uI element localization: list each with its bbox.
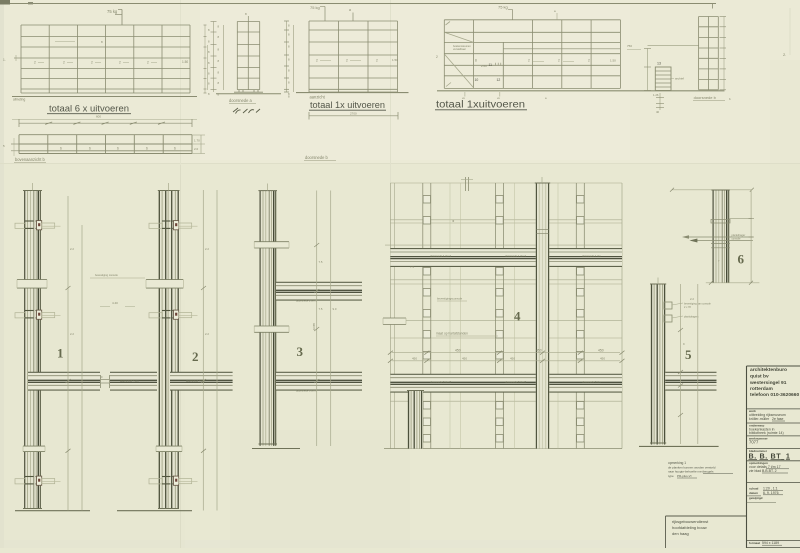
- svg-text:B. B. BT_1: B. B. BT_1: [749, 451, 791, 460]
- svg-text:doorsnede 1 t/m 3: doorsnede 1 t/m 3: [505, 254, 526, 258]
- svg-text:doorsnede 1 t/m: doorsnede 1 t/m: [582, 254, 601, 258]
- svg-text:13: 13: [657, 62, 661, 66]
- svg-text:6: 6: [117, 146, 119, 150]
- svg-text:vo: vo: [497, 96, 500, 100]
- svg-text:doorsnede 1 t/m 5: doorsnede 1 t/m 5: [296, 298, 317, 302]
- svg-text:2: 2: [119, 60, 121, 64]
- svg-text:1:20 , 1:1: 1:20 , 1:1: [763, 486, 778, 490]
- svg-text:doorsnede 6 t/m: doorsnede 6 t/m: [582, 380, 601, 384]
- svg-text:quist bv: quist bv: [750, 374, 769, 380]
- svg-text:maat op hartafstanden: maat op hartafstanden: [436, 332, 468, 336]
- svg-text:totaal 6 x uitvoeren: totaal 6 x uitvoeren: [49, 104, 129, 115]
- svg-text:naar hoogte-behoefte met: naar hoogte-behoefte met: [668, 470, 703, 474]
- svg-text:hoofdafdeling bouw: hoofdafdeling bouw: [672, 525, 707, 530]
- svg-text:2.2: 2.2: [70, 247, 74, 251]
- svg-text:doorsnede 6 t/m 8: doorsnede 6 t/m 8: [505, 380, 526, 384]
- svg-text:1.26: 1.26: [653, 93, 659, 97]
- svg-text:8: 8: [475, 59, 477, 63]
- svg-text:10: 10: [475, 78, 479, 82]
- svg-text:75 kg: 75 kg: [498, 5, 508, 10]
- svg-text:doorsnede 6 t/m 8: doorsnede 6 t/m 8: [430, 380, 451, 384]
- svg-text:450: 450: [462, 356, 467, 360]
- svg-text:750: 750: [627, 44, 632, 48]
- svg-text:telefoon 010-3620660: telefoon 010-3620660: [750, 392, 799, 398]
- svg-text:2: 2: [91, 60, 93, 64]
- svg-text:6: 6: [89, 146, 91, 150]
- svg-text:450: 450: [455, 349, 461, 353]
- svg-text:6: 6: [60, 146, 62, 150]
- svg-text:1.50: 1.50: [182, 60, 188, 64]
- svg-text:datum: datum: [749, 491, 758, 495]
- svg-text:6: 6: [146, 146, 148, 150]
- svg-text:2: 2: [63, 60, 65, 64]
- svg-text:2: 2: [316, 58, 318, 62]
- svg-text:doorsnede b: doorsnede b: [305, 155, 328, 160]
- svg-text:totaal 1xuitvoeren: totaal 1xuitvoeren: [436, 100, 525, 111]
- svg-text:5: 5: [685, 347, 692, 362]
- svg-text:schaal: schaal: [749, 486, 759, 490]
- svg-text:2: 2: [528, 59, 530, 63]
- svg-text:westersingel 91: westersingel 91: [749, 380, 787, 386]
- svg-text:B.B.BT. 2: B.B.BT. 2: [762, 469, 777, 473]
- svg-text:2: 2: [588, 59, 590, 63]
- svg-text:594 x 1189: 594 x 1189: [762, 541, 779, 545]
- svg-text:450: 450: [412, 356, 417, 360]
- svg-text:2700: 2700: [350, 112, 357, 116]
- svg-text:2: 2: [346, 58, 348, 62]
- svg-text:7.5: 7.5: [410, 265, 414, 269]
- svg-text:600: 600: [96, 115, 101, 119]
- svg-text:zie blad: zie blad: [749, 469, 761, 473]
- svg-text:afmeting: afmeting: [13, 98, 25, 102]
- svg-text:2e fase: 2e fase: [772, 417, 784, 421]
- svg-text:6: 6: [174, 146, 176, 150]
- svg-text:450: 450: [510, 356, 515, 360]
- svg-text:beugels: beugels: [703, 470, 714, 474]
- svg-text:bibliotheek (ruimte 14): bibliotheek (ruimte 14): [749, 431, 784, 435]
- svg-text:1.: 1.: [3, 58, 6, 62]
- svg-text:plankdragers: plankdragers: [684, 316, 699, 319]
- svg-text:2: 2: [558, 59, 560, 63]
- svg-text:450: 450: [598, 349, 604, 353]
- svg-text:7.5: 7.5: [319, 260, 323, 264]
- svg-text:2.2: 2.2: [690, 297, 694, 301]
- svg-text:4.40: 4.40: [112, 301, 118, 305]
- svg-text:450: 450: [600, 356, 605, 360]
- svg-text:PR-plus-VI: PR-plus-VI: [677, 474, 692, 478]
- svg-text:aanzicht: aanzicht: [310, 95, 326, 100]
- svg-text:2.0: 2.0: [194, 147, 199, 151]
- svg-text:totaal 1x uitvoeren: totaal 1x uitvoeren: [310, 100, 385, 111]
- svg-text:9.0: 9.0: [333, 307, 337, 311]
- svg-text:2.2: 2.2: [205, 332, 209, 336]
- svg-text:plankdrager: plankdrager: [732, 233, 746, 237]
- svg-text:40: 40: [656, 110, 660, 114]
- svg-text:3: 3: [297, 344, 304, 359]
- svg-text:archief: archief: [675, 77, 684, 81]
- svg-text:7.5: 7.5: [319, 307, 323, 311]
- svg-text:console: console: [732, 236, 741, 240]
- svg-text:kröller-müller: kröller-müller: [749, 417, 770, 421]
- svg-text:11: 11: [489, 63, 493, 67]
- svg-text:doorsnede b: doorsnede b: [694, 95, 717, 100]
- svg-text:den haag: den haag: [672, 531, 689, 536]
- svg-text:2.: 2.: [783, 52, 786, 57]
- svg-text:75 kg: 75 kg: [310, 5, 320, 10]
- svg-text:doorsnede 6 t/m 8: doorsnede 6 t/m 8: [296, 389, 317, 393]
- svg-text:2: 2: [376, 58, 378, 62]
- svg-text:2: 2: [34, 60, 36, 64]
- svg-text:verstelbaar: verstelbaar: [453, 47, 466, 51]
- svg-text:2: 2: [436, 55, 438, 59]
- svg-text:2.60: 2.60: [481, 64, 487, 68]
- svg-text:6. 9. 1976: 6. 9. 1976: [763, 491, 779, 495]
- svg-text:4: 4: [514, 309, 521, 324]
- svg-text:9.085: 9.085: [312, 323, 316, 330]
- svg-text:rotterdam: rotterdam: [750, 386, 773, 392]
- svg-text:1.70: 1.70: [194, 139, 200, 143]
- svg-text:1: 1: [57, 346, 64, 361]
- svg-text:rijksgebouwendienst: rijksgebouwendienst: [672, 519, 709, 524]
- svg-text:2: 2: [192, 349, 199, 364]
- svg-text:bovenaanzicht b: bovenaanzicht b: [15, 157, 46, 162]
- svg-text:bevestiging console: bevestiging console: [95, 273, 118, 277]
- svg-text:doorsnede 1 t/m 3: doorsnede 1 t/m 3: [430, 254, 451, 258]
- svg-text:type: type: [668, 474, 674, 478]
- svg-text:III: III: [452, 219, 455, 223]
- svg-text:a: a: [349, 8, 351, 12]
- svg-text:architektenburo: architektenburo: [750, 367, 787, 373]
- svg-text:450: 450: [536, 349, 542, 353]
- svg-text:1.50: 1.50: [610, 58, 616, 62]
- svg-text:1.50: 1.50: [392, 58, 398, 62]
- svg-text:bevestigingsconsole: bevestigingsconsole: [437, 297, 463, 301]
- svg-text:2.2: 2.2: [70, 332, 74, 336]
- svg-text:2: 2: [147, 60, 149, 64]
- svg-text:2.2: 2.2: [205, 247, 209, 251]
- svg-text:gewijzigd: gewijzigd: [749, 496, 763, 500]
- svg-text:vo: vo: [462, 96, 465, 100]
- svg-text:75 kg: 75 kg: [107, 9, 118, 14]
- svg-text:2 x 78: 2 x 78: [684, 306, 691, 309]
- svg-text:doorsnede 4 t/m: doorsnede 4 t/m: [120, 379, 139, 383]
- svg-text:doorsnede a: doorsnede a: [229, 98, 252, 103]
- svg-text:7077: 7077: [749, 440, 759, 445]
- svg-text:12: 12: [497, 78, 501, 82]
- svg-text:6: 6: [738, 252, 745, 267]
- svg-text:formaat: formaat: [749, 541, 760, 545]
